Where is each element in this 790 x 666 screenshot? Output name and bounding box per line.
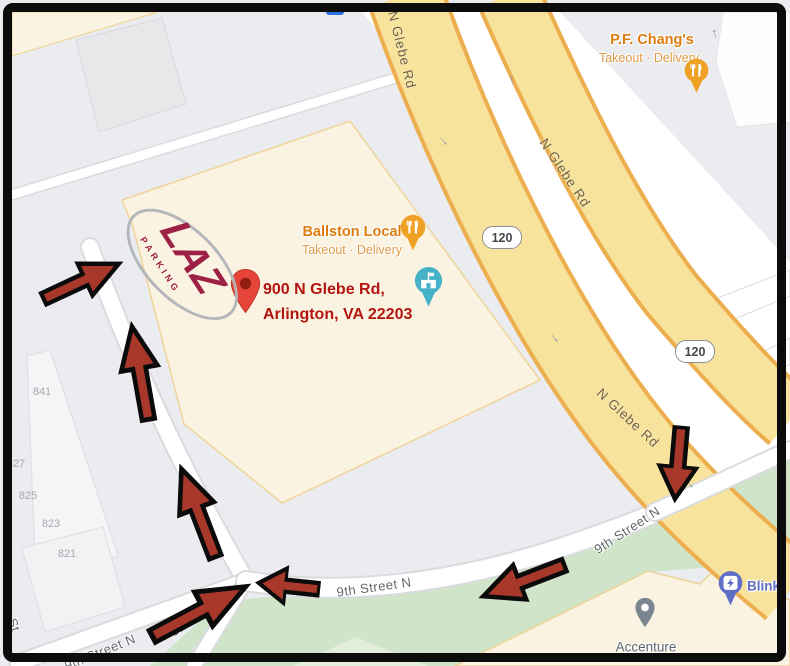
place-pin-icon[interactable] xyxy=(634,597,656,628)
route-arrow xyxy=(254,562,322,610)
poi-label-accenture[interactable]: Accenture xyxy=(616,640,677,655)
building-number: 823 xyxy=(42,518,60,530)
poi-label-pf-changs[interactable]: P.F. Chang's xyxy=(610,32,694,48)
destination-address-line2: Arlington, VA 22203 xyxy=(263,303,412,328)
school-pin-icon[interactable] xyxy=(413,266,444,308)
poi-label-ballston-local[interactable]: Ballston Local xyxy=(302,224,401,240)
route-arrow xyxy=(653,424,703,504)
building-number: 841 xyxy=(33,386,51,398)
map-screenshot: ↑ ↑ ↑ ↑ ↑ N Glebe Rd N Glebe Rd N Glebe … xyxy=(0,0,790,666)
building-number: 821 xyxy=(58,548,76,560)
restaurant-pin-icon[interactable] xyxy=(683,58,710,94)
poi-sublabel-ballston-local: Takeout · Delivery xyxy=(302,243,402,257)
building-number: 825 xyxy=(19,490,37,502)
restaurant-pin-icon[interactable] xyxy=(399,214,427,252)
destination-address: 900 N Glebe Rd, Arlington, VA 22203 xyxy=(263,278,412,328)
route-shield-120: 120 xyxy=(675,340,715,363)
transit-icon[interactable] xyxy=(326,8,344,15)
route-shield-120: 120 xyxy=(482,226,522,249)
destination-address-line1: 900 N Glebe Rd, xyxy=(263,278,412,303)
building-number: 827 xyxy=(7,458,25,470)
poi-label-blink[interactable]: Blink xyxy=(747,579,780,594)
ev-charger-pin-icon[interactable] xyxy=(717,570,744,607)
